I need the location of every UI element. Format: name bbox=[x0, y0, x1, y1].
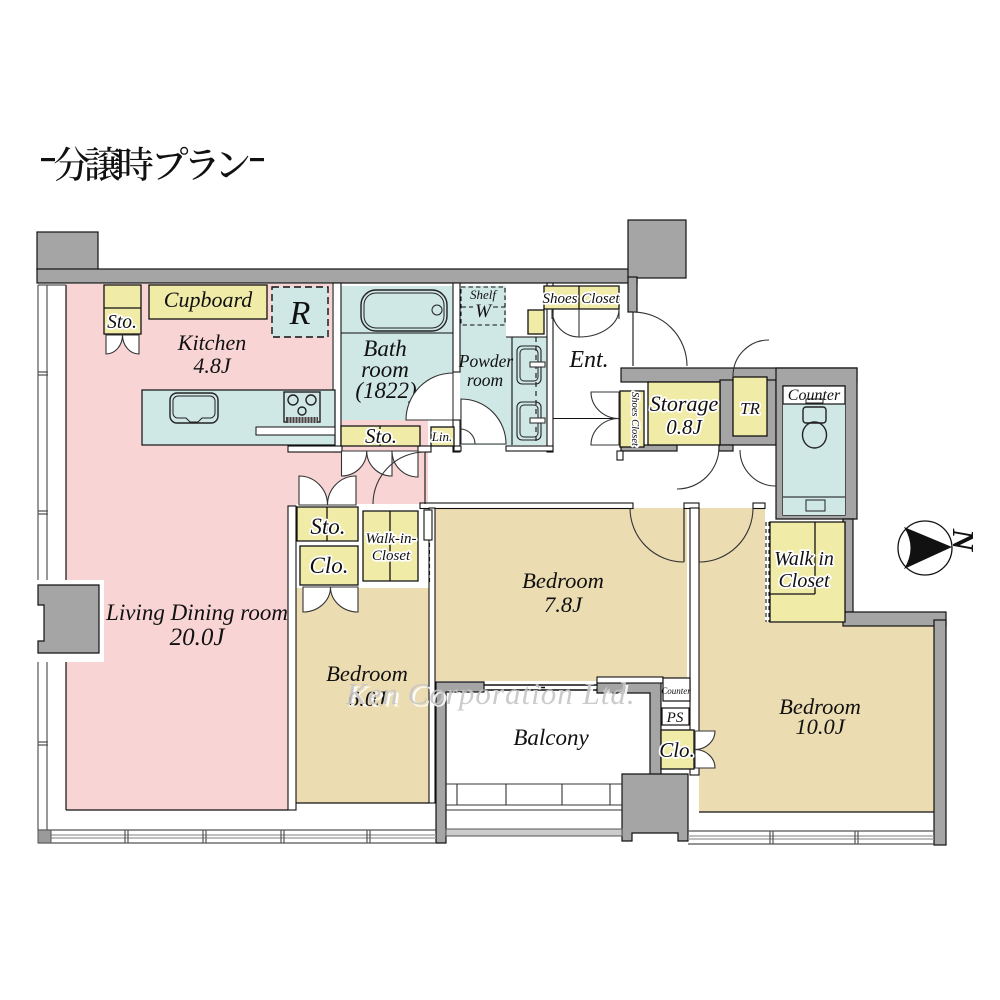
svg-text:Bedroom: Bedroom bbox=[522, 568, 604, 593]
svg-text:10.0J: 10.0J bbox=[795, 714, 845, 739]
svg-text:Clo.: Clo. bbox=[310, 553, 349, 578]
svg-text:PS: PS bbox=[666, 710, 684, 726]
svg-text:room: room bbox=[467, 370, 503, 390]
svg-text:N: N bbox=[946, 528, 981, 553]
svg-text:Sto.: Sto. bbox=[310, 514, 345, 539]
svg-text:Sto.: Sto. bbox=[365, 424, 397, 448]
svg-text:(1822): (1822) bbox=[355, 378, 416, 403]
svg-text:Walk in: Walk in bbox=[774, 548, 834, 570]
svg-text:Ken Corporation Ltd.: Ken Corporation Ltd. bbox=[345, 676, 636, 711]
svg-text:R: R bbox=[289, 295, 311, 332]
svg-text:Powder: Powder bbox=[458, 351, 514, 371]
svg-text:W: W bbox=[475, 301, 493, 322]
svg-text:TR: TR bbox=[740, 399, 760, 418]
svg-text:0.8J: 0.8J bbox=[666, 415, 703, 439]
svg-text:Shoes Closet: Shoes Closet bbox=[542, 291, 620, 307]
svg-text:Counter: Counter bbox=[788, 387, 841, 404]
svg-text:Storage: Storage bbox=[650, 391, 719, 416]
svg-text:Counter: Counter bbox=[661, 686, 691, 696]
svg-text:Kitchen: Kitchen bbox=[177, 330, 246, 355]
svg-text:Balcony: Balcony bbox=[513, 725, 589, 750]
svg-text:Closet: Closet bbox=[778, 570, 830, 592]
svg-text:20.0J: 20.0J bbox=[170, 624, 227, 651]
svg-text:Clo.: Clo. bbox=[659, 738, 695, 762]
svg-text:Sto.: Sto. bbox=[107, 312, 137, 333]
svg-text:Closet: Closet bbox=[372, 548, 411, 564]
svg-text:Walk-in-: Walk-in- bbox=[365, 531, 416, 547]
svg-text:Shelf: Shelf bbox=[470, 287, 498, 302]
svg-text:Living Dining room: Living Dining room bbox=[105, 600, 288, 625]
svg-text:Lin.: Lin. bbox=[431, 429, 453, 444]
svg-text:Ent.: Ent. bbox=[568, 347, 608, 373]
svg-text:Cupboard: Cupboard bbox=[164, 287, 253, 312]
svg-text:7.8J: 7.8J bbox=[544, 592, 583, 617]
svg-text:Shoes Closet: Shoes Closet bbox=[629, 392, 640, 447]
svg-text:4.8J: 4.8J bbox=[193, 353, 232, 378]
